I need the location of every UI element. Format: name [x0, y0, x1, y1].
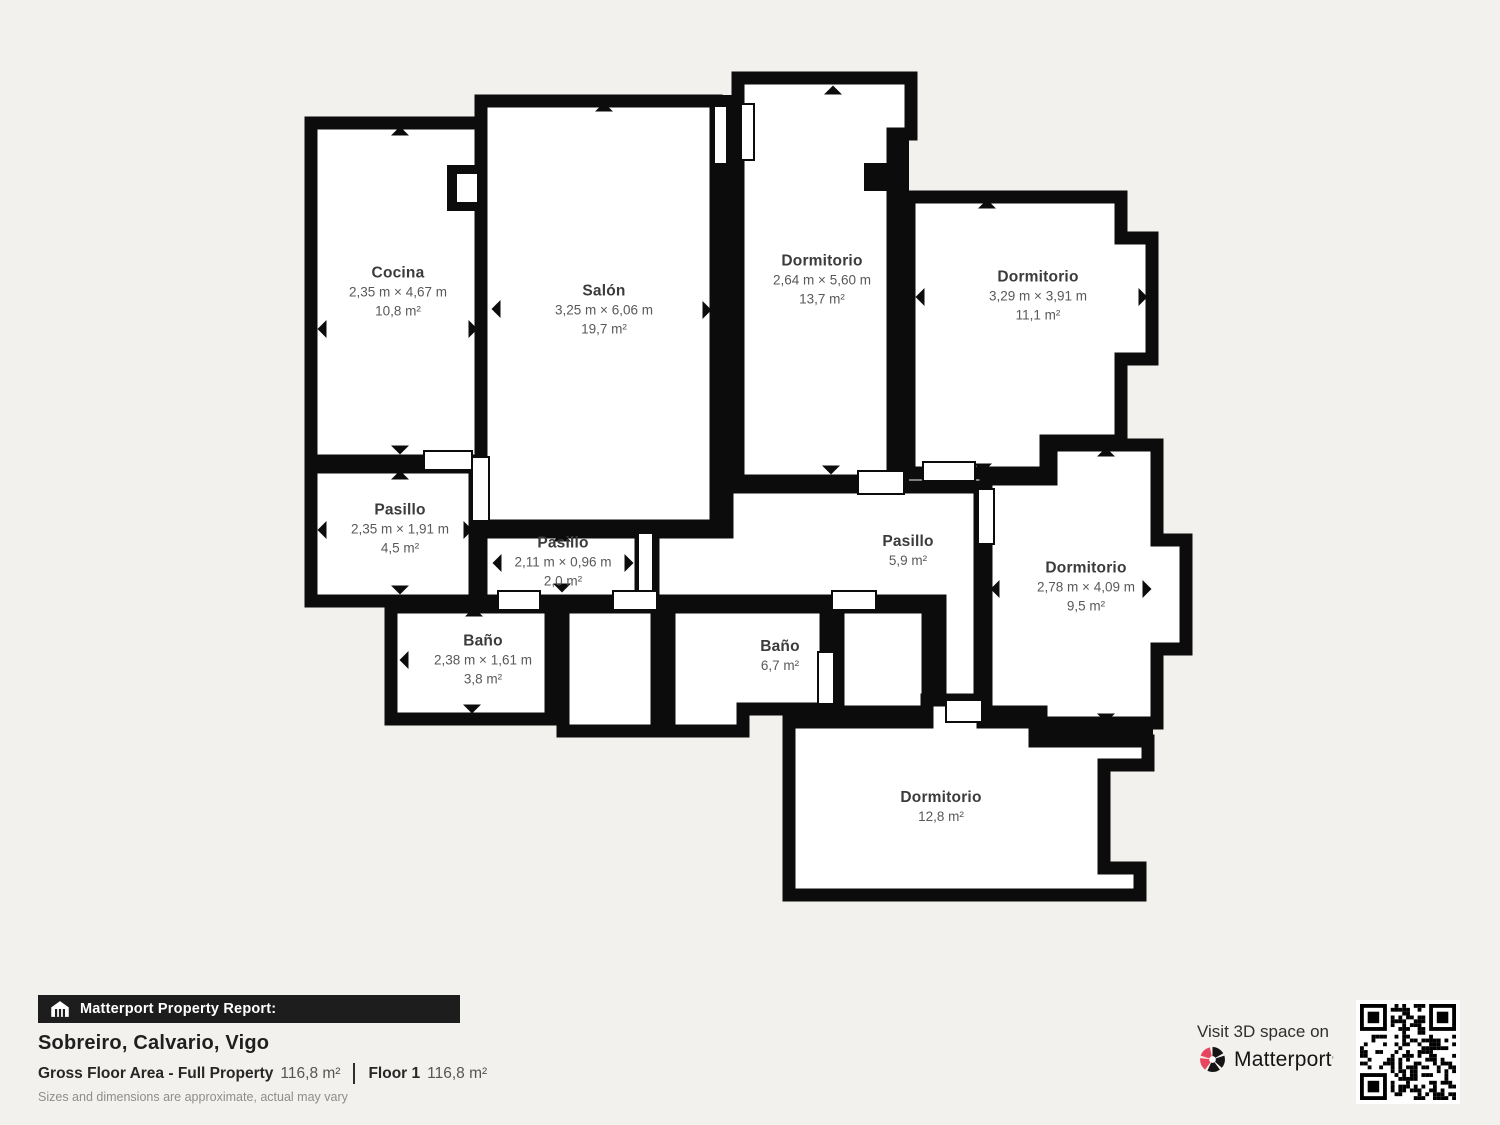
area-summary: Gross Floor Area - Full Property 116,8 m…	[38, 1063, 487, 1084]
report-title: Matterport Property Report:	[80, 1001, 276, 1017]
room-bano-2	[669, 607, 826, 731]
room-storage	[563, 607, 657, 731]
gfa-value: 116,8 m²	[280, 1065, 340, 1083]
house-icon	[50, 999, 70, 1019]
room-bano-1	[391, 607, 551, 719]
property-address: Sobreiro, Calvario, Vigo	[38, 1032, 269, 1055]
floorplan-drawing	[0, 0, 1500, 1125]
disclaimer-text: Sizes and dimensions are approximate, ac…	[38, 1090, 348, 1104]
divider	[353, 1063, 355, 1084]
floor-label: Floor 1	[368, 1065, 420, 1083]
floorplan-report-page: Cocina 2,35 m × 4,67 m 10,8 m² Salón 3,2…	[0, 0, 1500, 1125]
visit-3d-label: Visit 3D space on	[1197, 1022, 1333, 1042]
room-salon	[481, 101, 716, 526]
gfa-label: Gross Floor Area - Full Property	[38, 1065, 273, 1083]
room-dormitorio-2	[909, 197, 1152, 473]
floor-value: 116,8 m²	[427, 1065, 487, 1083]
room-pasillo-1	[311, 467, 475, 601]
wall-niche	[457, 174, 477, 202]
matterport-brand: Matterport ’	[1199, 1046, 1334, 1073]
brand-trademark: ’	[1332, 1055, 1334, 1065]
qr-code	[1356, 1000, 1460, 1104]
room-dormitorio-3	[986, 445, 1186, 723]
room-dormitorio-1	[738, 78, 911, 481]
qr-code-pattern	[1360, 1004, 1456, 1100]
brand-name: Matterport	[1234, 1048, 1332, 1072]
matterport-logo-icon	[1199, 1046, 1226, 1073]
report-header-bar: Matterport Property Report:	[38, 995, 460, 1023]
room-vestibule	[838, 607, 928, 712]
